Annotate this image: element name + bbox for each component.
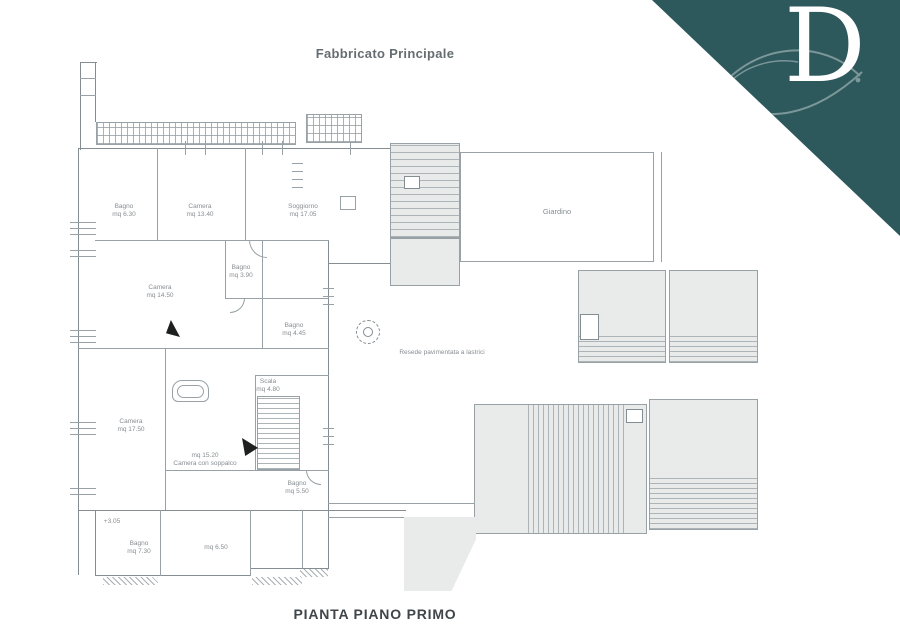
stair-landing bbox=[390, 238, 460, 286]
well-symbol-inner bbox=[363, 327, 373, 337]
dim-tick bbox=[323, 288, 334, 289]
ground-hatch bbox=[300, 569, 328, 577]
wall-segment bbox=[95, 510, 96, 576]
wall-segment bbox=[95, 62, 96, 122]
wall-segment bbox=[328, 510, 329, 569]
room-label-bagno: Bagnomq 3.90 bbox=[229, 264, 253, 281]
wall-segment bbox=[328, 503, 475, 504]
wall-segment bbox=[157, 148, 158, 240]
bed-symbol-inner bbox=[177, 385, 204, 398]
wall-tick bbox=[80, 78, 96, 79]
elevation-label: +3.05 bbox=[104, 518, 120, 526]
wall-segment bbox=[78, 148, 391, 149]
external-staircase-top bbox=[390, 143, 460, 238]
wall-segment bbox=[78, 510, 406, 511]
wall-segment bbox=[165, 348, 166, 510]
door-swing bbox=[230, 298, 245, 313]
dim-tick bbox=[323, 428, 334, 429]
floor-plan-sheet: Fabbricato Principale PIANTA PIANO PRIMO… bbox=[0, 0, 900, 631]
external-staircase-bottom bbox=[404, 517, 476, 591]
canopy-marker bbox=[580, 314, 599, 340]
wall-segment bbox=[80, 62, 81, 150]
room-label-soppalco: mq 15.20Camera con soppalco bbox=[173, 452, 236, 469]
room-label-camera: Cameramq 13.40 bbox=[186, 203, 213, 220]
window-tick bbox=[70, 234, 96, 235]
window-tick bbox=[70, 342, 96, 343]
direction-arrow-icon bbox=[166, 320, 180, 337]
dim-tick bbox=[323, 436, 334, 437]
wall-segment bbox=[160, 510, 161, 576]
window-tick bbox=[185, 141, 186, 155]
wall-segment bbox=[328, 263, 391, 264]
door-swing bbox=[249, 240, 267, 258]
wall-segment bbox=[95, 240, 329, 241]
wall-segment bbox=[255, 375, 329, 376]
wall-segment bbox=[80, 62, 97, 63]
wall-segment bbox=[250, 510, 251, 576]
room-label-camera: Cameramq 17.50 bbox=[117, 418, 144, 435]
room-label-bagno: Bagnomq 7.30 bbox=[127, 540, 151, 557]
wall-segment bbox=[302, 510, 303, 568]
window-tick bbox=[70, 494, 96, 495]
window-tick bbox=[70, 434, 96, 435]
ramp-step-lines bbox=[650, 478, 757, 529]
window-tick bbox=[70, 228, 96, 229]
agency-logo: D bbox=[652, 0, 900, 236]
wall-segment bbox=[78, 348, 329, 349]
wall-tick bbox=[80, 95, 96, 96]
dim-tick bbox=[292, 163, 303, 164]
window-tick bbox=[282, 141, 283, 155]
balcony-strip bbox=[96, 122, 296, 145]
dim-tick bbox=[292, 187, 303, 188]
page-title: Fabbricato Principale bbox=[316, 46, 455, 61]
dim-tick bbox=[323, 296, 334, 297]
ground-hatch bbox=[103, 577, 158, 585]
dim-tick bbox=[323, 304, 334, 305]
room-label-bagno: Bagnomq 5.50 bbox=[285, 480, 309, 497]
window-tick bbox=[70, 488, 96, 489]
area-label-giardino: Giardino bbox=[543, 207, 571, 217]
room-label-camera: Cameramq 14.50 bbox=[146, 284, 173, 301]
window-tick bbox=[262, 141, 263, 155]
window-tick bbox=[205, 141, 206, 155]
stair-marker bbox=[404, 176, 420, 189]
planter-box bbox=[306, 114, 362, 143]
fireplace-symbol bbox=[340, 196, 356, 210]
room-label-soggiorno: Soggiornomq 17.05 bbox=[288, 203, 318, 220]
room-label-ripostiglio: mq 6.50 bbox=[204, 544, 228, 552]
wall-segment bbox=[661, 152, 662, 262]
internal-staircase bbox=[257, 396, 300, 470]
logo-letter: D bbox=[784, 0, 866, 116]
dim-tick bbox=[323, 444, 334, 445]
window-tick bbox=[70, 250, 96, 251]
wall-segment bbox=[225, 240, 226, 298]
window-tick bbox=[350, 142, 351, 155]
window-tick bbox=[70, 256, 96, 257]
wall-segment bbox=[245, 148, 246, 240]
window-tick bbox=[70, 330, 96, 331]
window-tick bbox=[70, 336, 96, 337]
area-label-resede: Resede pavimentata a lastrici bbox=[399, 349, 484, 357]
dim-tick bbox=[292, 179, 303, 180]
dim-tick bbox=[292, 171, 303, 172]
room-label-bagno: Bagnomq 4.45 bbox=[282, 322, 306, 339]
canopy-eaves-lines bbox=[670, 333, 757, 362]
ground-hatch bbox=[252, 577, 302, 585]
wall-segment bbox=[165, 470, 329, 471]
plan-caption: PIANTA PIANO PRIMO bbox=[294, 606, 457, 622]
deck-marker bbox=[626, 409, 643, 423]
room-label-bagno: Bagnomq 6.30 bbox=[112, 203, 136, 220]
room-label-scala: Scalamq 4.80 bbox=[256, 378, 280, 395]
deck-board-lines bbox=[528, 405, 628, 533]
window-tick bbox=[70, 428, 96, 429]
window-tick bbox=[70, 222, 96, 223]
window-tick bbox=[70, 422, 96, 423]
wall-segment bbox=[95, 575, 251, 576]
